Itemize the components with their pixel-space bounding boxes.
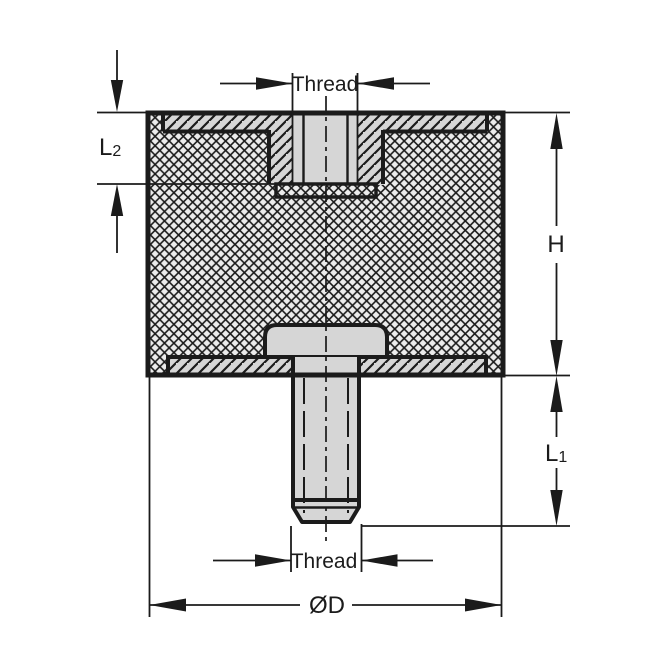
vibration-mount-cross-section: Thread L2 H L1 Thread: [0, 0, 670, 670]
dim-label-l2: L2: [99, 134, 121, 161]
dim-label-l1: L1: [545, 440, 567, 467]
dim-h: H: [503, 113, 570, 377]
dim-label-thread-top: Thread: [292, 73, 359, 96]
dim-label-diameter: ØD: [309, 592, 345, 619]
dim-label-h: H: [547, 231, 564, 258]
dim-l1: L1: [362, 376, 570, 526]
dim-label-thread-bottom: Thread: [291, 550, 358, 573]
technical-drawing-canvas: Thread L2 H L1 Thread: [0, 0, 670, 670]
dim-thread-bottom: Thread: [213, 524, 433, 573]
